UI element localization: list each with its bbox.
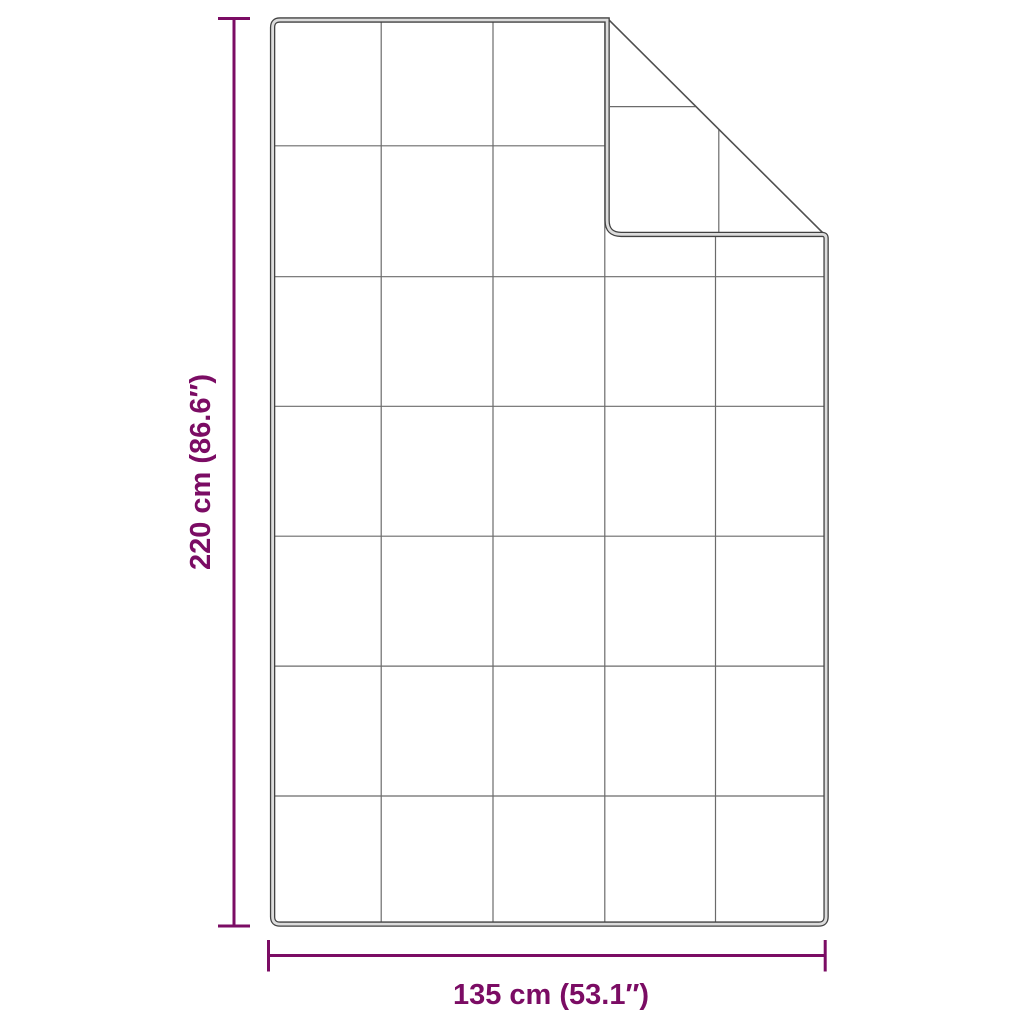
svg-text:135 cm (53.1″): 135 cm (53.1″) <box>453 979 649 1011</box>
svg-text:220 cm (86.6″): 220 cm (86.6″) <box>185 374 217 570</box>
